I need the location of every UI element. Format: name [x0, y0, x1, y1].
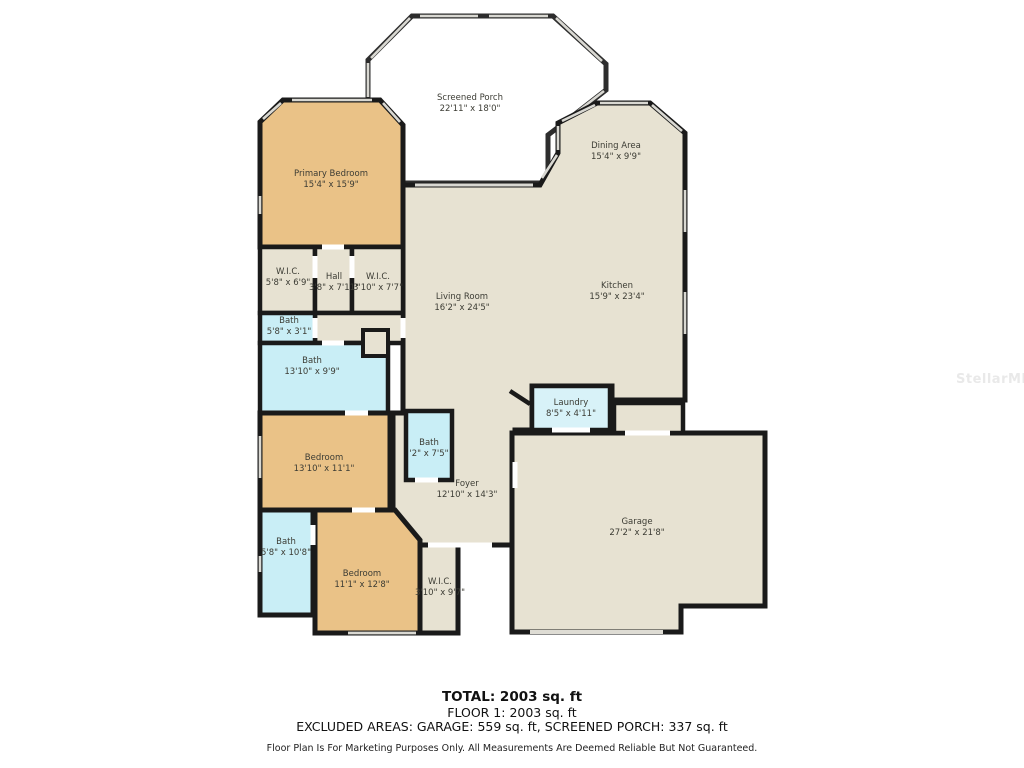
- bedroom-mid-shape: [260, 413, 390, 510]
- floor-plan-page: Screened Porch 22'11" x 18'0" Dining Are…: [0, 0, 1024, 768]
- primary-bedroom-shape: [260, 100, 403, 247]
- wic3-shape: [420, 545, 458, 633]
- hall-shape: [315, 247, 352, 313]
- garage-alcove-shape: [614, 403, 683, 433]
- bath-small-shape: [260, 313, 315, 343]
- wic2-shape: [352, 247, 403, 313]
- toilet-nook-shape: [363, 330, 388, 356]
- total-area-text: TOTAL: 2003 sq. ft: [0, 690, 1024, 706]
- laundry-shape: [532, 386, 610, 430]
- area-summary: TOTAL: 2003 sq. ft FLOOR 1: 2003 sq. ft …: [0, 690, 1024, 754]
- disclaimer-text: Floor Plan Is For Marketing Purposes Onl…: [0, 743, 1024, 754]
- excluded-areas-text: EXCLUDED AREAS: GARAGE: 559 sq. ft, SCRE…: [0, 720, 1024, 734]
- stellar-mls-watermark: StellarMLS: [956, 372, 1024, 387]
- bath-foyer-shape: [406, 411, 452, 480]
- floor-plan-drawing: [0, 0, 1024, 768]
- bath-bottom-shape: [260, 510, 313, 615]
- floor1-area-text: FLOOR 1: 2003 sq. ft: [0, 706, 1024, 720]
- wic1-shape: [260, 247, 315, 313]
- garage-shape: [512, 433, 765, 632]
- bedroom-bottom-shape: [315, 510, 420, 633]
